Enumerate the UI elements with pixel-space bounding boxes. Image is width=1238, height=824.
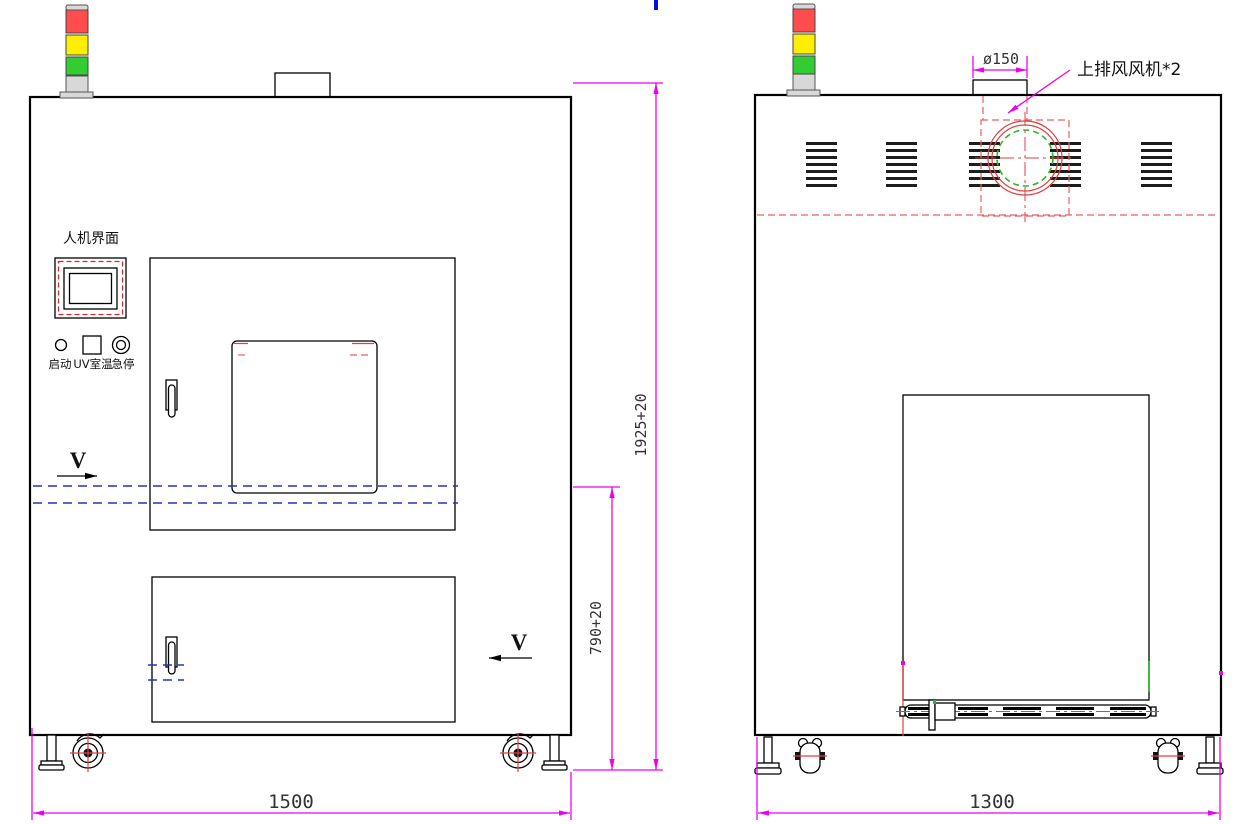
side-right-foot [1197, 737, 1223, 774]
front-right-caster [500, 734, 536, 772]
tower-base [793, 74, 815, 90]
side-cabinet-outline [755, 95, 1221, 735]
coupling-green-mark [933, 700, 936, 704]
conveyor-shaft [896, 700, 1159, 730]
dim-width-side-text: 1300 [969, 791, 1015, 813]
front-upper-door[interactable] [150, 258, 455, 530]
estop-button-inner [117, 341, 126, 350]
front-view: 人机界面 启动 UV室温 急停 [30, 5, 571, 772]
magenta-tick-left [901, 661, 905, 665]
section-marker-right: V [489, 630, 532, 658]
tower-yellow-light [66, 35, 88, 55]
tower-mount-plate [787, 90, 820, 96]
vent-grille-4 [1050, 142, 1081, 190]
tower-green-light [66, 57, 88, 75]
front-left-foot [39, 735, 64, 770]
stray-blue-mark [654, 0, 658, 10]
louver-red-marks [234, 344, 374, 356]
tower-red-light [793, 9, 815, 32]
svg-text:V: V [70, 448, 87, 473]
front-right-foot [542, 735, 567, 770]
hmi-screen-seal [59, 262, 123, 315]
front-signal-tower [60, 5, 93, 98]
uv-temp-label: UV室温 [73, 357, 113, 371]
tower-base [66, 76, 88, 92]
fan-note-text: 上排风风机*2 [1077, 60, 1181, 80]
vent-grille-5 [1141, 142, 1172, 190]
side-left-caster [793, 739, 827, 774]
dim-width-front-text: 1500 [268, 791, 314, 813]
side-left-foot [755, 737, 781, 774]
side-right-caster [1151, 739, 1185, 774]
tower-cap [66, 5, 88, 10]
fan-leader-line [1008, 70, 1070, 113]
estop-button-outer[interactable] [113, 337, 130, 354]
magenta-tick-right [1219, 671, 1223, 675]
shaft-coupling-plate [929, 700, 935, 730]
tower-yellow-light [793, 34, 815, 54]
louver-panel [232, 341, 377, 493]
vent-grille-1 [806, 142, 837, 190]
lower-door-handle[interactable] [166, 637, 177, 674]
dim-belt-text: 790+20 [587, 601, 605, 655]
hmi-screen-display[interactable] [70, 274, 112, 304]
front-exhaust-stub [275, 73, 330, 97]
side-duct-stub [973, 80, 1027, 95]
control-buttons: 启动 UV室温 急停 [49, 336, 135, 371]
cad-drawing-canvas: 人机界面 启动 UV室温 急停 [0, 0, 1238, 824]
start-label: 启动 [49, 357, 72, 371]
dim-fan-dia-text: ø150 [983, 50, 1019, 68]
start-button[interactable] [56, 340, 67, 351]
vent-grille-3 [969, 142, 1000, 190]
section-marker-left: V [57, 448, 97, 476]
side-view [755, 4, 1223, 774]
svg-text:V: V [511, 630, 528, 655]
dim-height-text: 1925+20 [632, 393, 650, 456]
front-left-caster [70, 734, 106, 772]
front-lower-door[interactable] [152, 577, 455, 722]
hmi-label: 人机界面 [63, 231, 119, 247]
hmi-panel: 人机界面 [55, 231, 126, 318]
tower-green-light [793, 56, 815, 74]
tower-cap [793, 4, 815, 9]
side-signal-tower [787, 4, 820, 96]
upper-door-handle[interactable] [166, 380, 177, 417]
front-dimensions: 1925+20 790+20 1500 [32, 83, 663, 820]
tower-mount-plate [60, 92, 93, 98]
front-cabinet-outline [30, 97, 571, 735]
side-door[interactable] [903, 395, 1149, 700]
tower-red-light [66, 10, 88, 33]
vent-grille-2 [886, 142, 917, 190]
shaft-coupling-block [935, 703, 955, 720]
estop-label: 急停 [112, 357, 135, 371]
uv-temp-display[interactable] [83, 336, 101, 354]
